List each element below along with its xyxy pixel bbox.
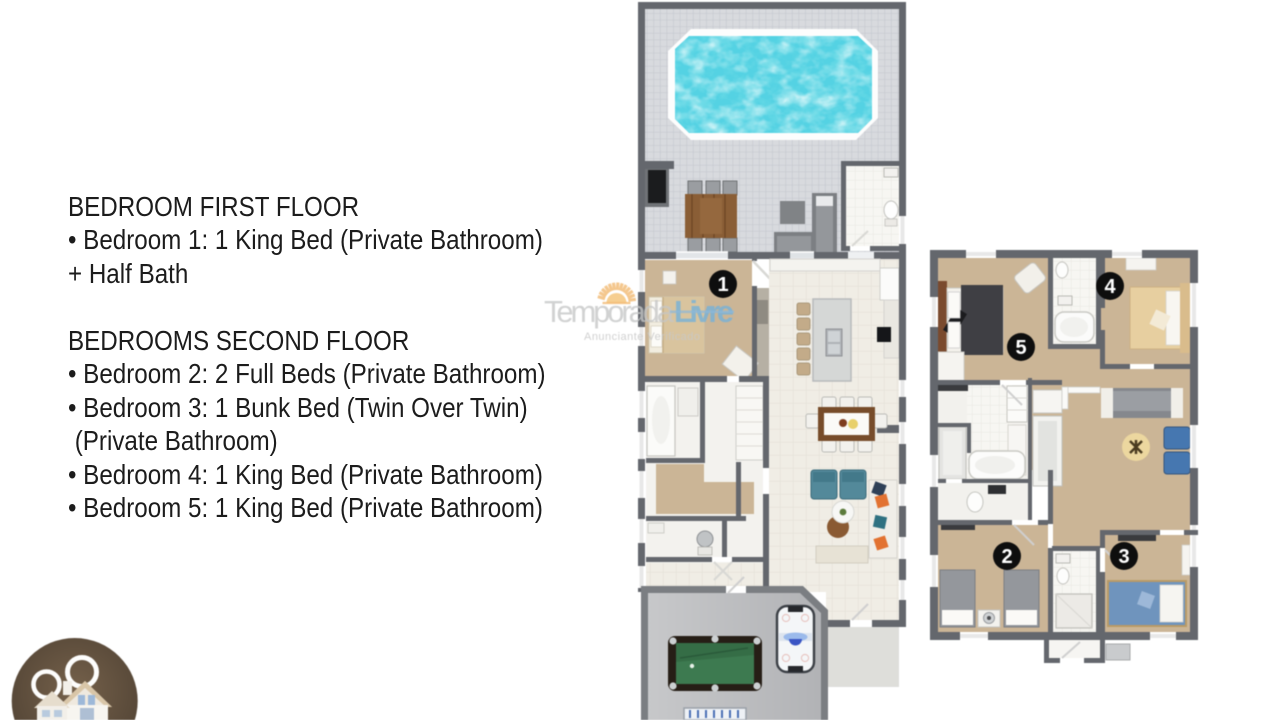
svg-text:4: 4	[1104, 276, 1116, 298]
svg-text:1: 1	[717, 274, 728, 296]
svg-text:5: 5	[1015, 337, 1026, 359]
svg-text:Anunciante Verificado: Anunciante Verificado	[584, 331, 700, 343]
svg-text:2: 2	[1001, 546, 1012, 568]
svg-text:Temporada: Temporada	[544, 294, 675, 329]
svg-text:3: 3	[1118, 546, 1129, 568]
